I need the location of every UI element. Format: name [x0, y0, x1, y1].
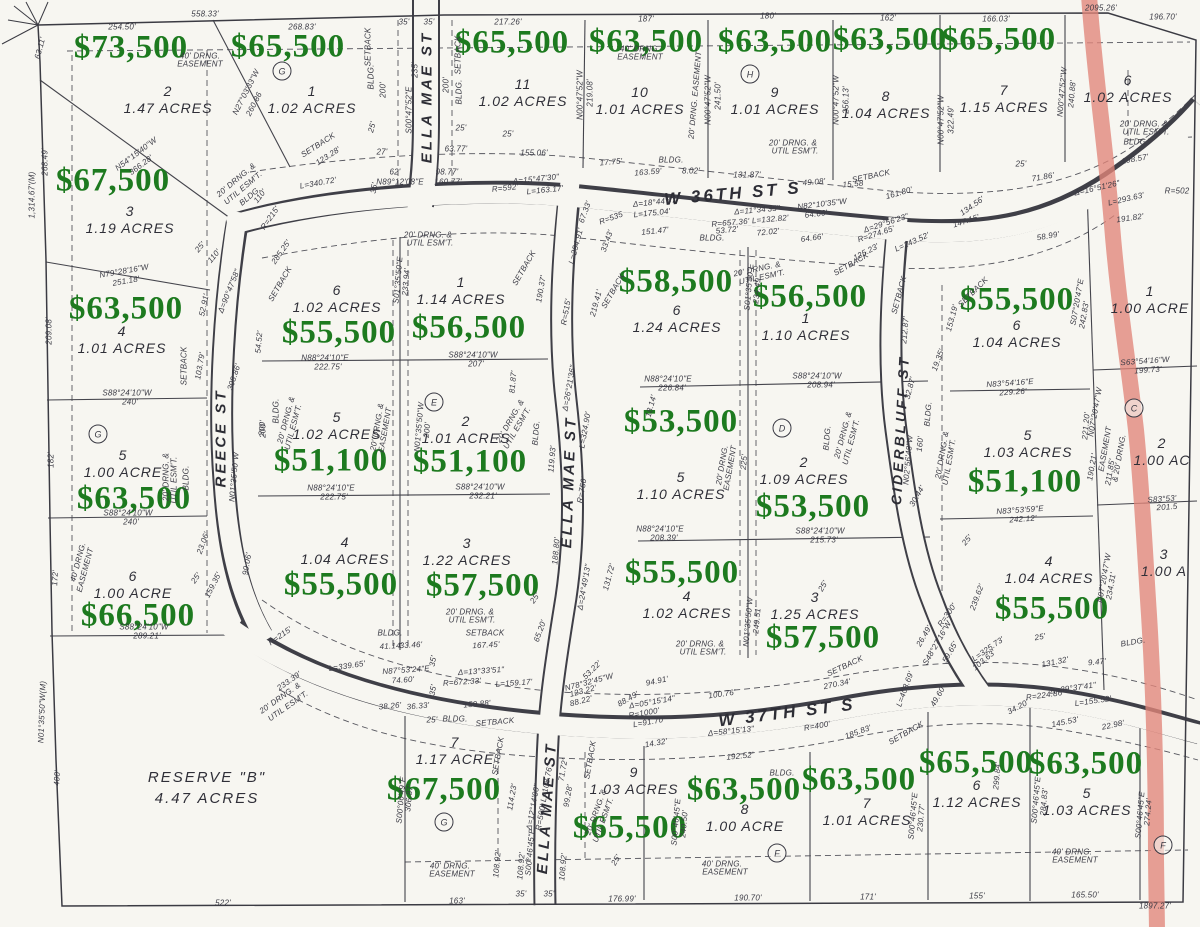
survey-annotation: 63.77': [445, 145, 468, 154]
survey-annotation: 199.73': [1134, 365, 1162, 376]
survey-annotation: 198.57': [1121, 152, 1150, 166]
lot-number: 3: [1141, 546, 1187, 563]
survey-annotation: SETBACK: [890, 275, 909, 315]
lot-price: $55,500: [625, 555, 739, 592]
street-label: ELLA MAE ST: [558, 416, 580, 549]
lot-label: 41.04 ACRES: [301, 534, 390, 568]
survey-annotation: 165.50': [1071, 891, 1098, 900]
lot-acreage: 1.00 AC: [1133, 452, 1190, 468]
survey-annotation: 147.15': [952, 212, 981, 229]
survey-annotation: 522': [215, 899, 231, 908]
survey-annotation: 62': [389, 168, 400, 177]
survey-annotation: 22.98': [1101, 718, 1125, 732]
survey-annotation: EASEMENT: [429, 870, 475, 879]
survey-annotation: 322.49': [947, 106, 956, 133]
survey-annotation: 162': [880, 14, 896, 23]
survey-annotation: 94.91': [645, 674, 669, 688]
survey-annotation: 208.39': [650, 534, 677, 543]
survey-annotation: 74.60': [391, 675, 414, 686]
lot-acreage: 1.04 ACRES: [1005, 570, 1094, 586]
survey-annotation: 270.34': [823, 677, 852, 692]
survey-annotation: S88°24'10"W: [103, 509, 152, 518]
survey-annotation: L=254.91': [567, 227, 585, 265]
survey-annotation: 100.76': [708, 688, 736, 701]
survey-annotation: 1,314.67'(M): [28, 171, 37, 218]
survey-annotation: 163.59': [634, 166, 662, 177]
survey-annotation: 558.33': [191, 10, 218, 19]
lot-label: 71.15 ACRES: [960, 82, 1049, 116]
survey-annotation: 217.26': [494, 18, 521, 27]
block-marker: F: [768, 844, 787, 863]
survey-annotation: 99.28': [562, 784, 575, 808]
lot-number: 2: [1133, 435, 1190, 452]
survey-annotation: Δ=58°15'13": [707, 724, 754, 738]
survey-annotation: 172': [50, 570, 60, 586]
survey-annotation: SETBACK: [266, 265, 293, 303]
survey-annotation: 33.43': [599, 229, 615, 253]
survey-annotation: 268.49': [41, 148, 50, 175]
lot-acreage: 1.15 ACRES: [960, 99, 1049, 115]
lot-label: 31.19 ACRES: [86, 203, 175, 237]
lot-acreage: 1.47 ACRES: [124, 100, 213, 116]
lot-label: 11.14 ACRES: [417, 274, 506, 308]
survey-annotation: BLDG.: [442, 715, 467, 724]
lot-number: 6: [633, 302, 722, 319]
lot-number: 11: [479, 76, 568, 93]
survey-annotation: Δ=24°49'13": [576, 563, 593, 610]
survey-annotation: 36.33': [406, 701, 429, 712]
survey-annotation: 25': [960, 533, 974, 547]
survey-annotation: S88°24'10"W: [102, 389, 151, 398]
survey-annotation: 225': [739, 454, 749, 470]
block-marker: G: [273, 62, 292, 81]
lot-acreage: 1.02 ACRES: [1084, 89, 1173, 105]
survey-annotation: Δ=26°21'36": [561, 364, 578, 411]
survey-annotation: 400': [52, 770, 62, 786]
survey-annotation: N88°24'10"E: [644, 375, 692, 384]
lot-price: $53,500: [756, 489, 870, 526]
survey-annotation: 103.79': [193, 352, 207, 381]
survey-annotation: BLDG.: [530, 420, 541, 446]
survey-annotation: 285.25': [269, 238, 292, 266]
plat-map: ELLA MAE STW 36TH ST SREECE STELLA MAE S…: [0, 0, 1200, 927]
lot-price: $63,500: [1029, 746, 1143, 783]
lot-label: 11.02 ACRES: [268, 83, 357, 117]
lot-acreage: 1.00 ACRE: [706, 818, 785, 834]
survey-annotation: 212.87': [899, 316, 910, 344]
survey-annotation: 119.93': [546, 445, 557, 472]
lot-acreage: 1.02 ACRES: [293, 426, 382, 442]
lot-price: $73,500: [74, 30, 188, 67]
survey-annotation: 222.75': [314, 363, 341, 372]
survey-annotation: EASEMENT: [617, 53, 663, 62]
survey-annotation: 35': [515, 890, 526, 899]
survey-annotation: 240.88': [1066, 80, 1077, 108]
survey-annotation: L=159.17': [495, 677, 532, 689]
survey-annotation: S88°24'10"W: [792, 372, 841, 381]
lot-price: $51,100: [968, 464, 1082, 501]
survey-annotation: EASEMENT: [177, 60, 223, 69]
survey-annotation: 131.32': [1041, 655, 1070, 670]
lot-label: 101.01 ACRES: [596, 84, 685, 118]
survey-annotation: Δ=13°33'51": [457, 665, 504, 677]
survey-annotation: 25': [455, 124, 466, 133]
survey-annotation: BLDG.: [455, 79, 464, 104]
survey-annotation: 239.62': [968, 583, 986, 612]
survey-annotation: N00°47'52"W: [576, 70, 585, 120]
survey-annotation: SETBACK: [475, 716, 514, 728]
lot-number: 9: [590, 764, 679, 781]
survey-annotation: SETBACK: [510, 249, 537, 287]
survey-annotation: N89°12'08"E: [376, 178, 424, 187]
survey-annotation: 35': [543, 890, 554, 899]
lot-acreage: 1.01 ACRES: [731, 101, 820, 117]
survey-annotation: 14.32': [644, 737, 668, 750]
lot-label: 31.22 ACRES: [423, 535, 512, 569]
lot-price: $56,500: [412, 310, 526, 347]
block-marker: E: [425, 393, 444, 412]
survey-annotation: 35': [398, 18, 409, 27]
survey-annotation: R=215': [259, 205, 282, 232]
survey-annotation: R=515': [559, 298, 572, 326]
lot-acreage: 1.14 ACRES: [417, 291, 506, 307]
survey-annotation: L=293.63': [1107, 190, 1145, 207]
survey-annotation: 190.70': [734, 894, 761, 903]
survey-annotation: 8.02': [682, 167, 700, 176]
survey-annotation: N00°47'52"W: [937, 95, 946, 145]
survey-annotation: 155': [969, 892, 985, 901]
survey-annotation: 25': [502, 130, 513, 139]
lot-label: 21.00 AC: [1133, 435, 1190, 469]
survey-annotation: 200': [379, 82, 388, 98]
survey-annotation: N00°47'52"W: [704, 75, 713, 125]
lot-acreage: 1.00 ACRE: [84, 464, 163, 480]
lot-number: 6: [973, 317, 1062, 334]
lot-acreage: 1.17 ACRE: [416, 751, 495, 767]
survey-annotation: 20' DRNG. EASEMENT: [687, 51, 704, 140]
lot-label: 51.02 ACRES: [293, 409, 382, 443]
survey-annotation: UTIL ESM'T.: [680, 648, 727, 657]
lot-number: 6: [293, 282, 382, 299]
lot-number: 5: [293, 409, 382, 426]
survey-annotation: 2095.26': [1085, 4, 1117, 13]
lot-price: $63,500: [802, 762, 916, 799]
survey-annotation: 232.21': [469, 492, 496, 501]
survey-annotation: N88°24'10"E: [301, 354, 349, 363]
survey-annotation: BLDG.: [922, 401, 933, 427]
lot-acreage: 1.04 ACRES: [301, 551, 390, 567]
survey-annotation: 90.06': [241, 552, 254, 576]
block-marker: D: [773, 419, 792, 438]
survey-annotation: L=143.52': [893, 230, 930, 253]
lot-acreage: 1.00 ACRE: [1111, 300, 1190, 316]
lot-acreage: 1.04 ACRES: [842, 105, 931, 121]
survey-annotation: 25': [1034, 632, 1046, 643]
street-label: REECE ST: [213, 388, 230, 487]
lot-label: 71.01 ACRES: [823, 795, 912, 829]
block-marker: G: [89, 425, 108, 444]
lot-label: 21.47 ACRES: [124, 83, 213, 117]
lot-price: $63,500: [833, 22, 947, 59]
lot-acreage: 1.03 ACRES: [984, 444, 1073, 460]
survey-annotation: 64.66': [804, 208, 828, 220]
survey-annotation: BLDG.: [182, 465, 191, 490]
survey-annotation: 71.86': [1031, 171, 1055, 184]
survey-annotation: 254.50': [108, 23, 135, 32]
survey-annotation: 54.52': [254, 330, 265, 353]
survey-annotation: 25': [189, 571, 203, 585]
survey-annotation: SETBACK: [466, 629, 505, 638]
lot-label: 61.12 ACRES: [933, 777, 1022, 811]
lot-label: 21.09 ACRES: [760, 454, 849, 488]
survey-annotation: 108.92': [557, 853, 568, 881]
survey-annotation: 25': [1015, 160, 1026, 169]
survey-annotation: 131.87': [733, 171, 760, 180]
survey-annotation: 17.75': [599, 157, 622, 168]
lot-price: $55,500: [995, 591, 1109, 628]
survey-annotation: SETBACK: [887, 719, 925, 746]
survey-annotation: 209.08': [45, 317, 54, 344]
survey-annotation: 200': [259, 422, 268, 438]
survey-annotation: 81.87': [508, 370, 519, 393]
survey-annotation: 72.02': [756, 226, 780, 237]
survey-annotation: 49.08': [802, 177, 825, 188]
lot-label: 111.02 ACRES: [479, 76, 568, 110]
survey-annotation: L=408.69': [894, 670, 915, 708]
lot-acreage: 1.09 ACRES: [760, 471, 849, 487]
lot-number: 1: [1111, 283, 1190, 300]
survey-annotation: 233.94': [400, 268, 411, 296]
lot-label: 11.00 ACRE: [1111, 283, 1190, 317]
block-marker: H: [741, 65, 760, 84]
survey-annotation: 160.77': [434, 178, 461, 187]
survey-annotation: 222.75': [320, 493, 347, 502]
survey-annotation: BLDG.: [1123, 138, 1148, 147]
block-marker: C: [1125, 399, 1144, 418]
survey-annotation: 256.13': [842, 86, 851, 113]
survey-annotation: 23.06': [195, 531, 211, 555]
lot-acreage: 1.02 ACRES: [643, 605, 732, 621]
survey-annotation: 114.23': [505, 783, 519, 811]
survey-annotation: 163': [449, 897, 465, 906]
survey-annotation: N01°35'50"W(M): [36, 681, 47, 744]
survey-annotation: N00°47'52"W: [832, 75, 841, 125]
lot-price: $53,500: [624, 404, 738, 441]
survey-annotation: EASEMENT: [702, 868, 748, 877]
lot-acreage: 1.01 ACRES: [78, 340, 167, 356]
survey-annotation: 1897.27': [1139, 902, 1171, 911]
lot-number: 1: [268, 83, 357, 100]
survey-annotation: L=163.17': [526, 184, 564, 197]
survey-annotation: 208.94': [807, 381, 834, 390]
survey-annotation: 185.83': [844, 723, 873, 741]
survey-annotation: 27': [376, 148, 387, 157]
lot-label: 71.17 ACRE: [416, 734, 495, 768]
survey-annotation: BLDG.: [699, 234, 724, 243]
survey-annotation: R=224.86': [1025, 688, 1064, 702]
survey-annotation: N88°24'10"E: [636, 525, 684, 534]
lot-number: 5: [1043, 785, 1132, 802]
lot-number: 2: [124, 83, 213, 100]
lot-price: $58,500: [619, 264, 733, 301]
survey-annotation: 200': [422, 422, 432, 438]
survey-annotation: BLDG.: [821, 425, 832, 451]
lot-label: 41.01 ACRES: [78, 323, 167, 357]
lot-number: 7: [960, 82, 1049, 99]
survey-annotation: UTIL ESM'T.: [449, 616, 496, 625]
survey-annotation: 25': [193, 240, 207, 254]
survey-annotation: 150.88': [463, 698, 491, 709]
survey-annotation: 182': [47, 452, 56, 468]
survey-annotation: L=339.65': [328, 659, 366, 673]
survey-annotation: L=340.72': [299, 175, 337, 190]
survey-annotation: 188.80': [550, 537, 561, 565]
survey-annotation: 215.73': [810, 536, 837, 545]
survey-annotation: SETBACK: [364, 28, 373, 67]
survey-annotation: 289.21': [133, 632, 160, 641]
survey-annotation: 167.45': [472, 640, 500, 650]
lot-number: 8: [842, 88, 931, 105]
survey-annotation: R=672.33': [443, 676, 482, 688]
survey-annotation: 161.80': [885, 185, 914, 201]
lot-acreage: 1.02 ACRES: [268, 100, 357, 116]
survey-annotation: 191.82': [1116, 212, 1144, 225]
reserve-acreage: 4.47 ACRES: [155, 790, 260, 807]
survey-annotation: 110': [206, 247, 223, 264]
survey-annotation: 190.37': [534, 275, 548, 304]
survey-annotation: 58.99': [1036, 230, 1060, 243]
lot-number: 1: [417, 274, 506, 291]
survey-annotation: 235': [411, 62, 420, 78]
survey-annotation: 180': [760, 12, 776, 21]
lot-label: 51.03 ACRES: [984, 427, 1073, 461]
survey-annotation: 176.99': [608, 895, 635, 904]
lot-number: 4: [1005, 553, 1094, 570]
survey-annotation: 25': [609, 853, 622, 867]
survey-annotation: 65.20': [532, 619, 548, 643]
survey-annotation: 35': [423, 18, 434, 27]
survey-annotation: 268.83': [288, 23, 315, 32]
lot-acreage: 1.01 ACRES: [596, 101, 685, 117]
survey-annotation: S88°24'10"W: [455, 483, 504, 492]
survey-annotation: 308.86': [225, 363, 242, 392]
block-marker: F: [1154, 836, 1173, 855]
lot-number: 7: [416, 734, 495, 751]
survey-annotation: BLDG.: [769, 769, 794, 778]
survey-annotation: BLDG.: [367, 64, 376, 89]
survey-annotation: 160': [915, 436, 925, 452]
lot-number: 3: [771, 589, 860, 606]
lot-acreage: 1.19 ACRES: [86, 220, 175, 236]
survey-annotation: BLDG.: [272, 398, 281, 423]
survey-annotation: 166.03': [982, 15, 1009, 24]
lot-label: 61.02 ACRES: [1084, 72, 1173, 106]
lot-acreage: 1.01 ACRES: [823, 812, 912, 828]
survey-annotation: SETBACK: [454, 36, 463, 75]
lot-acreage: 1.00 A: [1141, 563, 1187, 579]
lot-number: 3: [423, 535, 512, 552]
survey-annotation: 63.11': [33, 36, 47, 60]
survey-annotation: 229.26': [999, 387, 1027, 398]
survey-annotation: 64.66': [800, 232, 824, 244]
lot-price: $65,500: [231, 29, 345, 66]
survey-annotation: 230.77': [915, 804, 926, 832]
survey-annotation: 151.47': [641, 225, 669, 237]
lot-acreage: 1.10 ACRES: [637, 486, 726, 502]
survey-annotation: 49.60': [928, 684, 947, 708]
lot-number: 4: [301, 534, 390, 551]
survey-annotation: 226.84': [658, 384, 685, 393]
lot-number: 3: [86, 203, 175, 220]
survey-annotation: 240.50': [678, 810, 689, 838]
survey-annotation: 240': [122, 398, 138, 407]
lot-acreage: 1.24 ACRES: [633, 319, 722, 335]
lot-number: 5: [984, 427, 1073, 444]
lot-price: $65,500: [942, 22, 1056, 59]
lot-price: $67,500: [56, 163, 170, 200]
lot-acreage: 1.02 ACRES: [293, 299, 382, 315]
survey-annotation: SETBACK: [826, 654, 865, 679]
survey-annotation: R=592': [491, 182, 518, 194]
lot-price: $55,500: [282, 315, 396, 352]
lot-number: 10: [596, 84, 685, 101]
survey-annotation: N88°24'10"E: [307, 484, 355, 493]
block-marker: G: [435, 813, 454, 832]
survey-annotation: 9.47': [1088, 657, 1107, 668]
lot-acreage: 1.12 ACRES: [933, 794, 1022, 810]
lot-label: 31.00 A: [1141, 546, 1187, 580]
survey-annotation: 207': [468, 360, 484, 369]
reserve-label: RESERVE "B"4.47 ACRES: [148, 767, 266, 809]
lot-acreage: 1.02 ACRES: [479, 93, 568, 109]
survey-annotation: L=175.04': [633, 207, 671, 220]
lot-label: 61.04 ACRES: [973, 317, 1062, 351]
survey-annotation: 108.92': [491, 850, 502, 878]
reserve-name: RESERVE "B": [148, 769, 266, 786]
lot-price: $57,500: [426, 568, 540, 605]
lot-price: $65,500: [455, 25, 569, 62]
survey-annotation: 274.24': [1142, 798, 1153, 826]
lot-number: 2: [422, 413, 511, 430]
survey-annotation: S88°24'10"W: [119, 623, 168, 632]
survey-annotation: R=535: [598, 210, 624, 227]
survey-annotation: 171': [860, 893, 876, 902]
street-label: ELLA MAE ST: [419, 31, 436, 163]
survey-annotation: S88°24'10"W: [795, 527, 844, 536]
survey-annotation: L=155.52': [1074, 694, 1112, 708]
survey-annotation: R=502: [1165, 187, 1190, 196]
survey-annotation: 35': [428, 684, 439, 696]
lot-number: 5: [84, 447, 163, 464]
lot-price: $63,500: [718, 24, 832, 61]
survey-annotation: 25': [426, 716, 437, 725]
survey-annotation: 52.91': [197, 293, 211, 317]
survey-annotation: R=400': [803, 719, 831, 732]
survey-annotation: 35': [428, 655, 439, 667]
survey-annotation: 153.19': [944, 304, 960, 333]
lot-label: 81.04 ACRES: [842, 88, 931, 122]
survey-annotation: UTIL ESM'T.: [1123, 128, 1170, 137]
lot-label: 51.10 ACRES: [637, 469, 726, 503]
lot-label: 41.02 ACRES: [643, 588, 732, 622]
survey-annotation: 38.26': [378, 701, 401, 712]
survey-annotation: UTIL ESM'T.: [772, 147, 819, 156]
survey-annotation: S00°47'52"E: [405, 86, 414, 133]
survey-annotation: SETBACK: [180, 347, 189, 386]
survey-annotation: 155.06': [520, 149, 547, 158]
survey-annotation: SETBACK: [851, 168, 891, 185]
map-labels-layer: ELLA MAE STW 36TH ST SREECE STELLA MAE S…: [0, 0, 1200, 927]
